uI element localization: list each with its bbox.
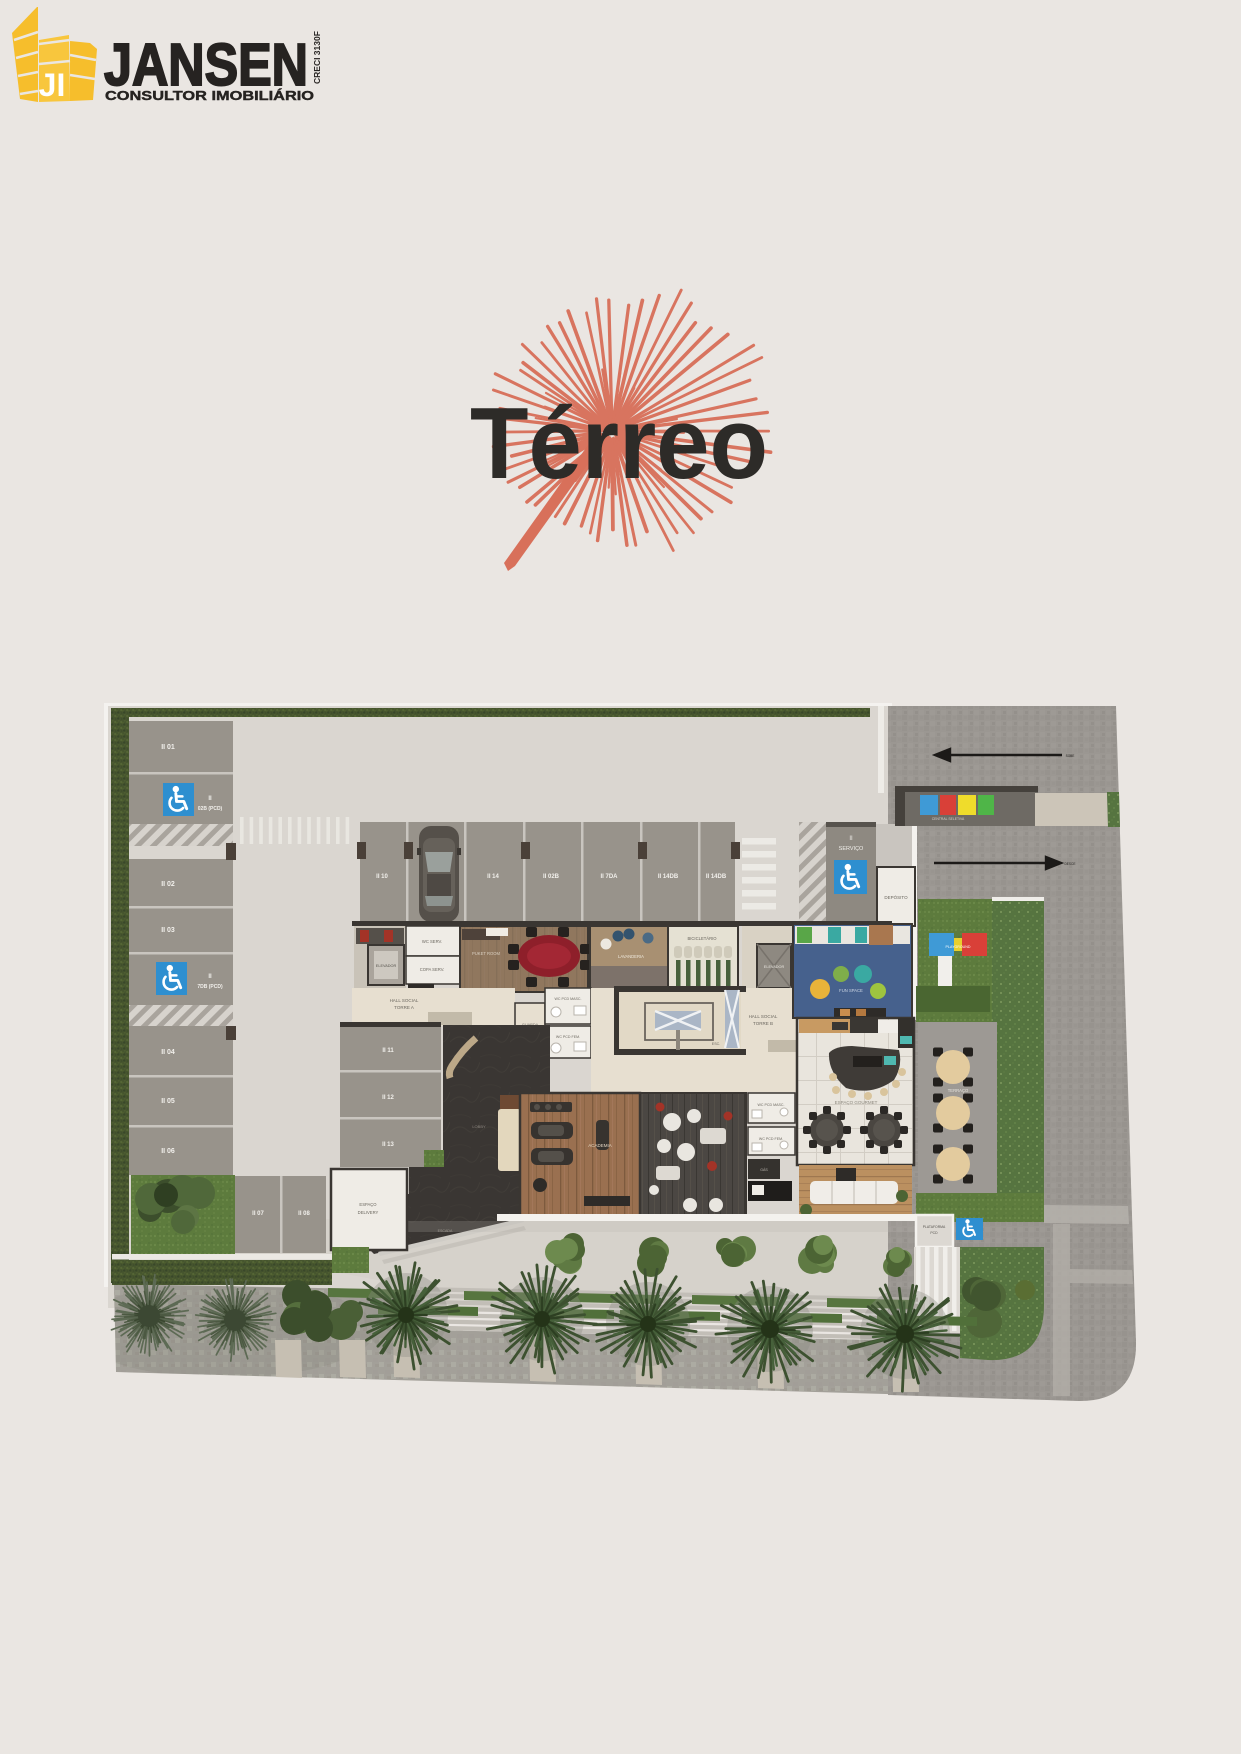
- svg-text:II 06: II 06: [161, 1148, 175, 1155]
- svg-text:WC SERV.: WC SERV.: [422, 939, 442, 944]
- svg-text:HALL SOCIAL: HALL SOCIAL: [390, 998, 419, 1003]
- svg-text:WC PCD FEM.: WC PCD FEM.: [759, 1137, 783, 1141]
- svg-text:PLATAFORMA: PLATAFORMA: [923, 1225, 946, 1229]
- svg-text:II: II: [849, 836, 853, 842]
- svg-text:II 11: II 11: [382, 1048, 394, 1054]
- svg-text:DELIVERY: DELIVERY: [358, 1210, 379, 1215]
- svg-text:PLAYGROUND: PLAYGROUND: [946, 945, 971, 949]
- svg-text:SOBE: SOBE: [1066, 754, 1075, 758]
- svg-text:ELEVADOR: ELEVADOR: [764, 965, 785, 969]
- svg-text:II 03: II 03: [161, 927, 175, 934]
- svg-text:TERRAÇO: TERRAÇO: [948, 1088, 969, 1093]
- svg-text:II 02B: II 02B: [543, 874, 560, 880]
- svg-text:Térreo: Térreo: [470, 388, 768, 500]
- svg-text:02B (PCD): 02B (PCD): [198, 806, 223, 812]
- svg-text:PCD: PCD: [930, 1231, 938, 1235]
- svg-text:II 13: II 13: [382, 1142, 394, 1148]
- svg-text:ESPAÇO GOURMET: ESPAÇO GOURMET: [835, 1100, 878, 1105]
- svg-text:DESCE: DESCE: [1065, 862, 1076, 866]
- svg-text:II: II: [208, 974, 212, 980]
- svg-text:DEPÓSITO: DEPÓSITO: [884, 894, 908, 900]
- svg-text:JI: JI: [39, 67, 66, 103]
- svg-text:ESC.: ESC.: [712, 1042, 720, 1046]
- svg-text:COPA SERV.: COPA SERV.: [420, 967, 445, 972]
- svg-text:ACADEMIA: ACADEMIA: [588, 1143, 612, 1148]
- svg-text:CENTRAL SELETIVA: CENTRAL SELETIVA: [932, 817, 965, 821]
- svg-text:TORRE B: TORRE B: [753, 1021, 773, 1026]
- svg-text:II 07: II 07: [252, 1211, 264, 1217]
- svg-text:WC PCD MASC.: WC PCD MASC.: [555, 997, 582, 1001]
- svg-text:CRECI 3130F: CRECI 3130F: [312, 31, 322, 84]
- svg-text:TORRE A: TORRE A: [394, 1005, 414, 1010]
- svg-text:PUKET ROOM: PUKET ROOM: [472, 951, 501, 956]
- svg-text:BICICLETÁRIO: BICICLETÁRIO: [687, 936, 717, 941]
- svg-text:II 10: II 10: [376, 874, 388, 880]
- svg-text:7DB (PCD): 7DB (PCD): [197, 984, 223, 990]
- svg-text:FUN SPACE: FUN SPACE: [839, 988, 863, 993]
- svg-text:II 7DA: II 7DA: [600, 874, 618, 880]
- svg-text:II: II: [208, 796, 212, 802]
- svg-text:II 08: II 08: [298, 1211, 310, 1217]
- svg-text:II 02: II 02: [161, 881, 175, 888]
- svg-text:II 14: II 14: [487, 874, 499, 880]
- svg-text:HALL SOCIAL: HALL SOCIAL: [749, 1014, 778, 1019]
- svg-text:ELEVADOR: ELEVADOR: [376, 964, 397, 968]
- svg-text:II 05: II 05: [161, 1098, 175, 1105]
- svg-text:WC PCD FEM.: WC PCD FEM.: [556, 1035, 580, 1039]
- svg-text:ESPAÇO: ESPAÇO: [359, 1202, 377, 1207]
- svg-text:LAVANDERIA: LAVANDERIA: [618, 954, 644, 959]
- svg-text:LOBBY: LOBBY: [472, 1124, 486, 1129]
- svg-text:SERVIÇO: SERVIÇO: [839, 846, 864, 852]
- svg-text:II 14DB: II 14DB: [658, 874, 679, 880]
- svg-text:II 04: II 04: [161, 1049, 175, 1056]
- svg-text:II 14DB: II 14DB: [706, 874, 727, 880]
- svg-text:WC PCD MASC.: WC PCD MASC.: [758, 1103, 785, 1107]
- svg-text:II 01: II 01: [161, 744, 175, 751]
- svg-text:GÁS: GÁS: [760, 1168, 768, 1172]
- svg-text:II 12: II 12: [382, 1095, 394, 1101]
- svg-text:CONSULTOR IMOBILIÁRIO: CONSULTOR IMOBILIÁRIO: [105, 88, 314, 103]
